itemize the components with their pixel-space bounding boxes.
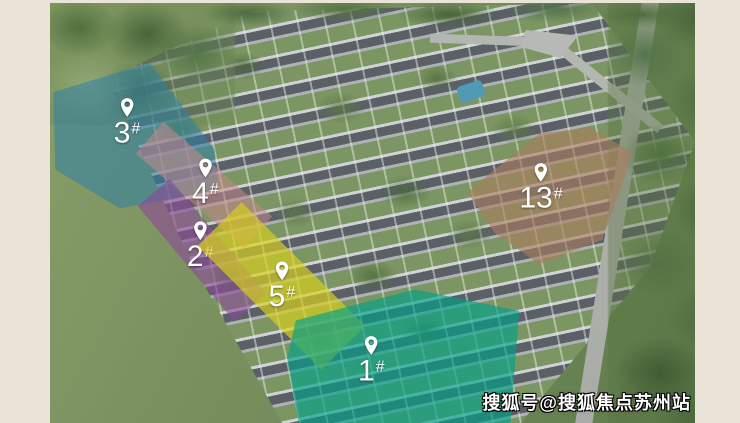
location-pin-icon	[274, 261, 289, 281]
zone-13-label: 13#	[519, 162, 562, 213]
zone-13-overlay: 13#	[460, 123, 640, 273]
zone-4-label: 4#	[192, 158, 219, 209]
page-background: 3# 4# 2# 5#	[0, 0, 740, 423]
sohu-watermark: 搜狐号@搜狐焦点苏州站	[482, 389, 691, 415]
zone-4-number: 4#	[192, 179, 219, 209]
zone-1-number: 1#	[358, 356, 385, 386]
aerial-render-image: 3# 4# 2# 5#	[50, 3, 695, 423]
zone-1-label: 1#	[358, 335, 385, 386]
zone-13-number: 13#	[519, 183, 562, 213]
zone-3-number: 3#	[114, 119, 141, 149]
location-pin-icon	[120, 98, 135, 118]
location-pin-icon	[534, 162, 549, 182]
location-pin-icon	[364, 335, 379, 355]
location-pin-icon	[198, 158, 213, 178]
zone-3-label: 3#	[114, 98, 141, 149]
